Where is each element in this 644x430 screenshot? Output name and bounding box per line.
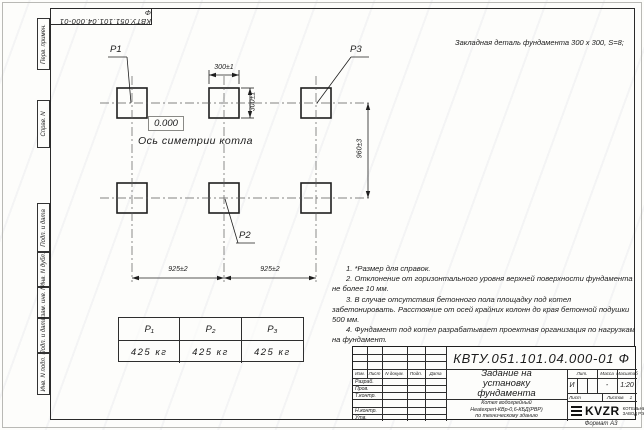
logo-caption-line: ЗАВОД РЭП — [623, 411, 644, 416]
mass-value: - — [597, 378, 617, 393]
mass-header: Масса — [597, 369, 617, 378]
kvzr-logo-text: KVZR — [585, 404, 620, 418]
doc-title-line: фундамента — [477, 389, 535, 399]
col-header-list: Лист — [367, 369, 382, 378]
point-label-p1: P1 — [110, 44, 122, 55]
scale-value: 1:20 — [617, 378, 637, 393]
row-label-utv: Утв. — [353, 414, 384, 421]
load-table: P₁ P₂ P₃ 425 кг 425 кг 425 кг — [118, 317, 304, 362]
title-block-doc-title: Задание на установку фундамента — [446, 369, 567, 399]
embedded-part-caption: Закладная деталь фундамента 300 х 300, S… — [455, 38, 624, 47]
product-line: по техническому зданию — [475, 413, 538, 420]
company-logo: KVZR КОТЕЛЬНЫЙ ЗАВОД РЭП — [571, 403, 635, 419]
title-block-designation: КВТУ.051.101.04.000-01 Ф — [446, 347, 637, 369]
col-header-date: Дата — [425, 369, 446, 378]
dim-col-spacing-right: 925±2 — [250, 266, 290, 273]
sheets-header: Листов — [607, 395, 624, 400]
leader-lines — [108, 57, 369, 243]
title-block-product: Котел водогрейный Heatexpert-КВр-0,6-КБД… — [446, 399, 567, 421]
note-item: 2. Отклонение от горизонтального уровня … — [332, 274, 635, 294]
dim-width-top: 300±1 — [204, 64, 244, 71]
load-table-value: 425 кг — [180, 341, 241, 363]
load-table-value: 425 кг — [242, 341, 303, 363]
row-label-nkontr: Н.контр. — [353, 407, 384, 414]
lit-header: Лит. — [567, 369, 597, 378]
load-table-header: P₃ — [242, 318, 303, 341]
dim-col-spacing-left: 925±2 — [158, 266, 198, 273]
load-table-header: P₁ — [119, 318, 180, 341]
dim-height-right: 300±1 — [250, 82, 257, 122]
row-label-tkontr: Т.контр. — [353, 392, 384, 399]
kvzr-logo-icon — [571, 406, 582, 417]
scale-header: Масштаб — [617, 369, 637, 378]
level-mark: 0.000 — [148, 116, 184, 131]
top-designation-stamp: КВТУ.051.101.04.000-01 Ф — [50, 8, 152, 25]
product-line: Heatexpert-КВр-0,6-КБД(РВР) — [470, 407, 542, 414]
col-header-doc: N докум. — [382, 369, 407, 378]
sheets-cell: Листов 1 — [602, 393, 637, 401]
top-designation-text: КВТУ.051.101.04.000-01 Ф — [51, 8, 151, 26]
point-label-p3: P3 — [350, 44, 362, 55]
product-line: Котел водогрейный — [481, 400, 531, 407]
level-mark-value: 0.000 — [154, 118, 178, 129]
note-item: 4. Фундамент под котел разрабатывает про… — [332, 325, 635, 345]
lit-value: И — [567, 378, 577, 393]
col-header-izm: Изм. — [353, 369, 367, 378]
kvzr-logo-caption: КОТЕЛЬНЫЙ ЗАВОД РЭП — [623, 406, 644, 416]
row-label-razrab: Разраб. — [353, 378, 384, 385]
symmetry-axis-label: Ось симетрии котла — [138, 135, 253, 147]
note-item: 1. *Размер для справок. — [332, 264, 635, 274]
row-label-blank — [353, 399, 384, 407]
notes-block: 1. *Размер для справок. 2. Отклонение от… — [332, 264, 635, 345]
row-label-prov: Пров. — [353, 385, 384, 392]
drawing-sheet: Перв. примен. Справ. N Подп. и дата Инв.… — [0, 0, 644, 430]
load-table-value: 425 кг — [119, 341, 180, 363]
sheet-header: Лист — [567, 393, 604, 401]
dim-row-spacing: 960±3 — [357, 129, 364, 169]
load-table-header: P₂ — [180, 318, 241, 341]
format-label: Формат А3 — [566, 421, 636, 427]
sheets-value: 1 — [630, 395, 633, 400]
note-item: 3. В случае отсутствия бетонного пола пл… — [332, 295, 635, 326]
col-header-sign: Подп. — [407, 369, 425, 378]
title-block: КВТУ.051.101.04.000-01 Ф Изм. Лист N док… — [352, 346, 636, 420]
point-label-p2: P2 — [239, 230, 251, 241]
